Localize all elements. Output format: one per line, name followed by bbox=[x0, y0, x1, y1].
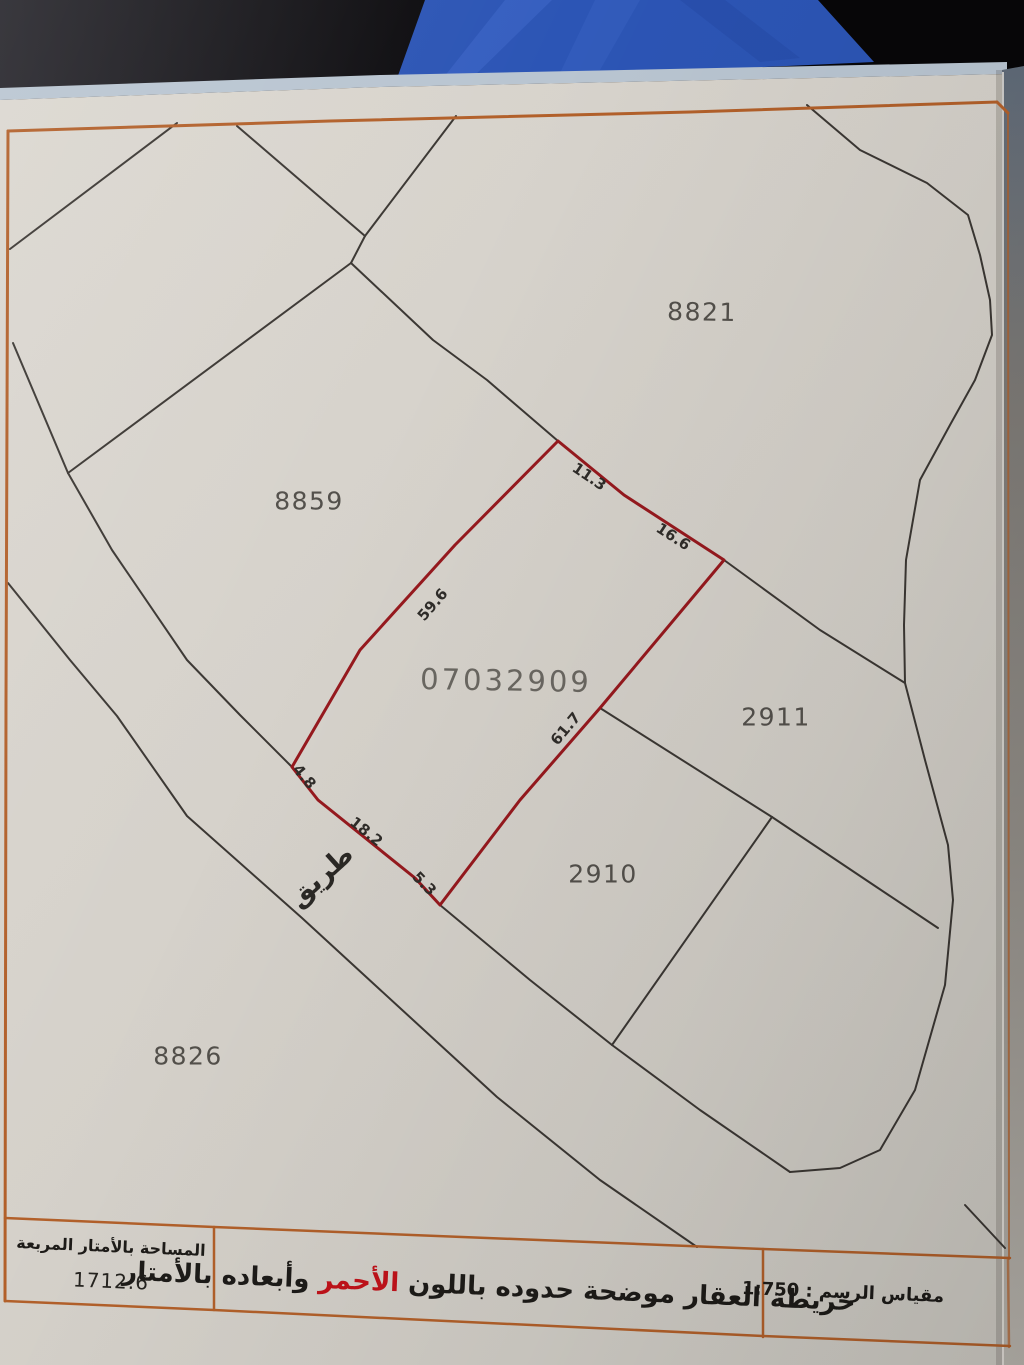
footer-note-red-word: الأحمر bbox=[318, 1265, 400, 1298]
cadastral-map-photo: 8821 8859 2911 2910 8826 07032909 11.3 1… bbox=[0, 0, 1024, 1365]
paper-sheet bbox=[0, 74, 1007, 1365]
parcel-label-8826: 8826 bbox=[153, 1044, 223, 1069]
parcel-label-8821: 8821 bbox=[667, 299, 737, 325]
parcel-label-2911: 2911 bbox=[741, 705, 811, 730]
subject-parcel-number: 07032909 bbox=[420, 665, 592, 697]
page-edge-band bbox=[1002, 66, 1024, 1365]
parcel-label-8859: 8859 bbox=[274, 489, 344, 514]
parcel-label-2910: 2910 bbox=[568, 862, 638, 887]
footer-scale-value: 1:750 bbox=[742, 1278, 800, 1301]
